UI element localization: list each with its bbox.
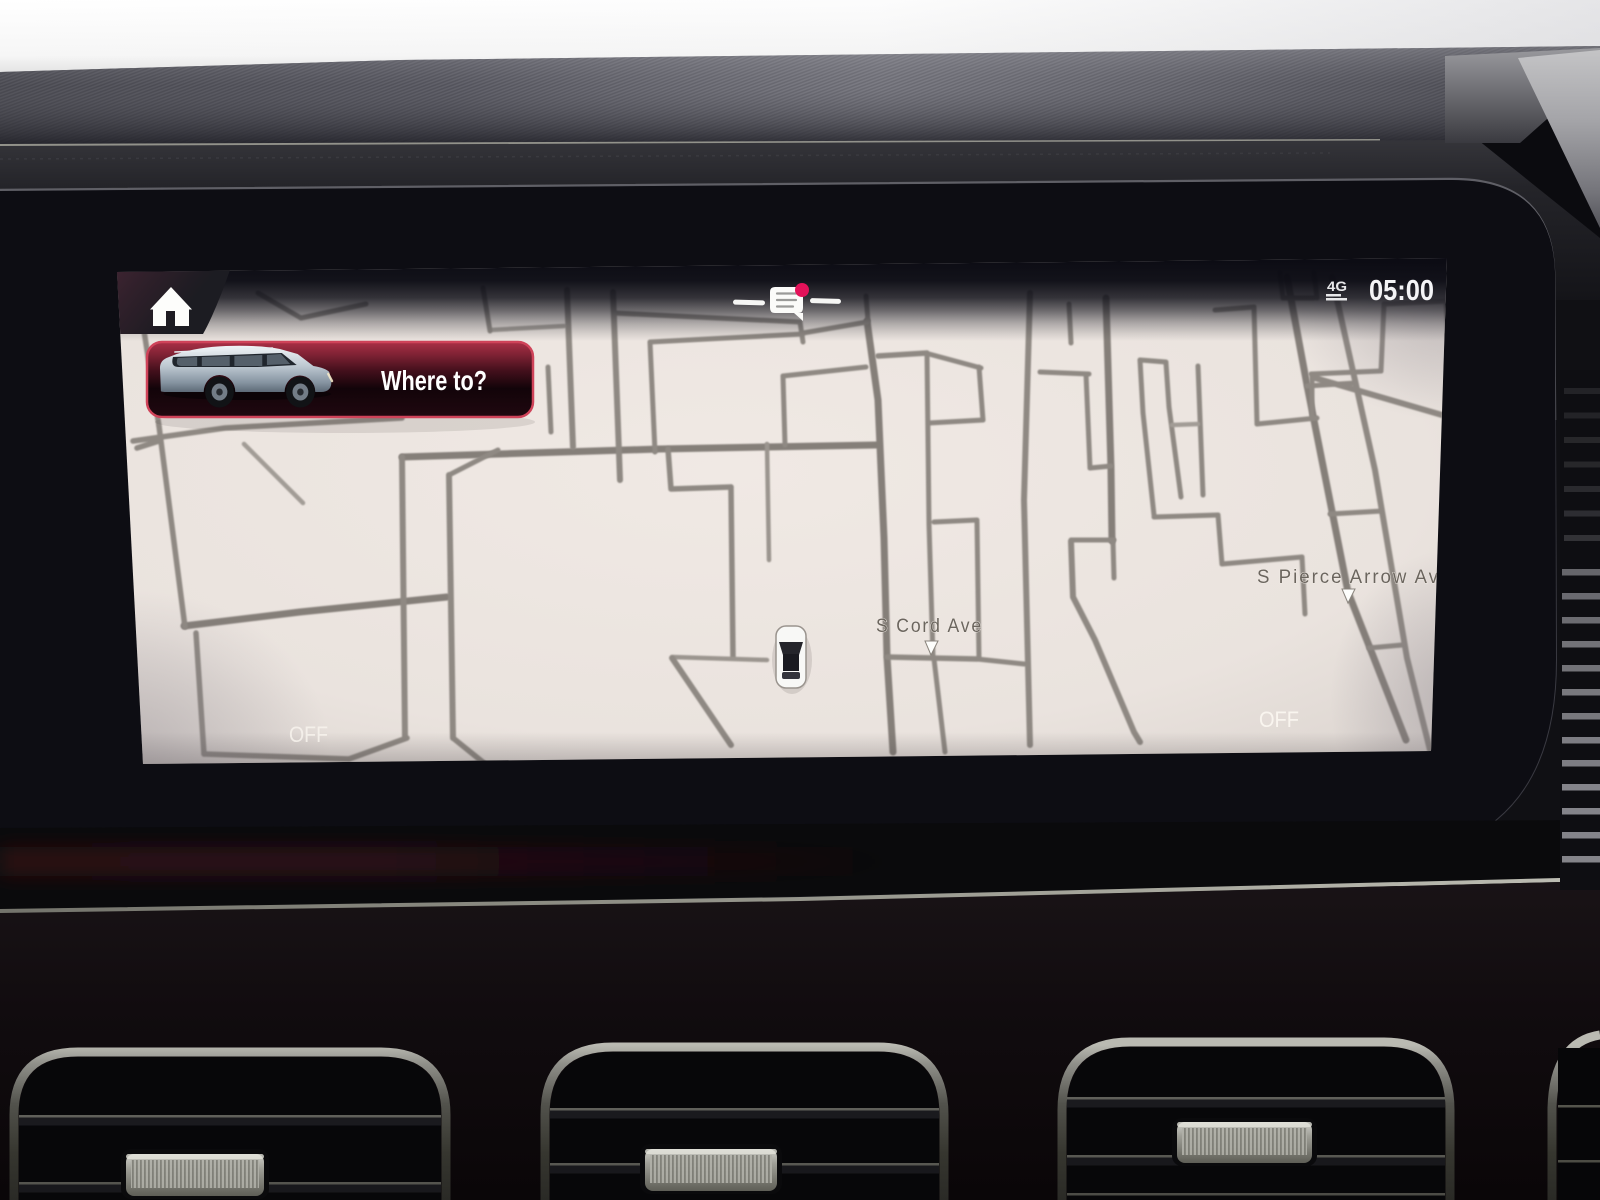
svg-text:S Pierce Arrow Av: S Pierce Arrow Av — [1257, 567, 1440, 588]
svg-text:S Cord Ave: S Cord Ave — [876, 616, 983, 637]
svg-text:Where to?: Where to? — [381, 365, 487, 396]
svg-text:OFF: OFF — [1259, 707, 1299, 732]
svg-text:4G: 4G — [1327, 278, 1347, 294]
svg-text:05:00: 05:00 — [1369, 275, 1434, 307]
svg-text:OFF: OFF — [289, 722, 328, 747]
